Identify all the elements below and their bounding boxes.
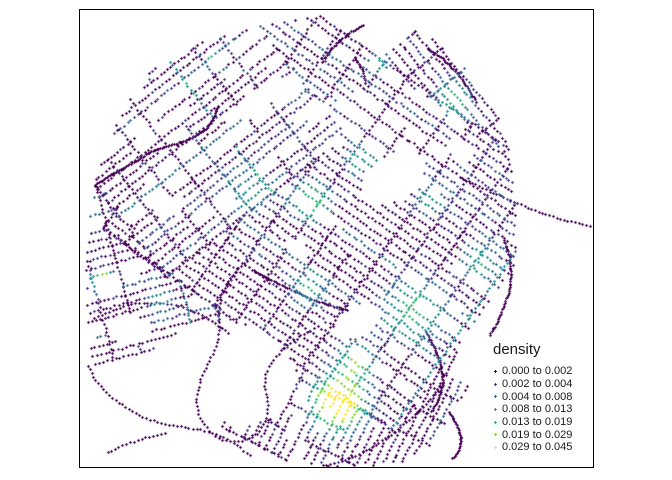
legend-title: density [493, 341, 572, 358]
legend-entry-label: 0.000 to 0.002 [502, 365, 572, 377]
legend-row: 0.019 to 0.029 [490, 428, 572, 441]
legend-key-cross-icon [493, 432, 498, 437]
legend-row: 0.008 to 0.013 [490, 403, 572, 416]
legend-key-cross-icon [493, 420, 498, 425]
legend-key-cross-icon [493, 445, 498, 450]
legend-key-cross-icon [493, 407, 498, 412]
legend-entry-label: 0.004 to 0.008 [502, 391, 572, 403]
legend-row: 0.002 to 0.004 [490, 378, 572, 391]
legend-entry-label: 0.029 to 0.045 [502, 441, 572, 453]
legend-key-cross-icon [493, 369, 498, 374]
legend: density 0.000 to 0.002 0.002 to 0.004 0.… [490, 341, 572, 454]
legend-row: 0.004 to 0.008 [490, 390, 572, 403]
legend-entry-label: 0.019 to 0.029 [502, 429, 572, 441]
legend-entry-label: 0.013 to 0.019 [502, 416, 572, 428]
legend-row: 0.000 to 0.002 [490, 365, 572, 378]
legend-entry-label: 0.008 to 0.013 [502, 403, 572, 415]
legend-key-cross-icon [493, 382, 498, 387]
legend-row: 0.013 to 0.019 [490, 416, 572, 429]
legend-key-cross-icon [493, 394, 498, 399]
legend-entry-label: 0.002 to 0.004 [502, 378, 572, 390]
legend-row: 0.029 to 0.045 [490, 441, 572, 454]
